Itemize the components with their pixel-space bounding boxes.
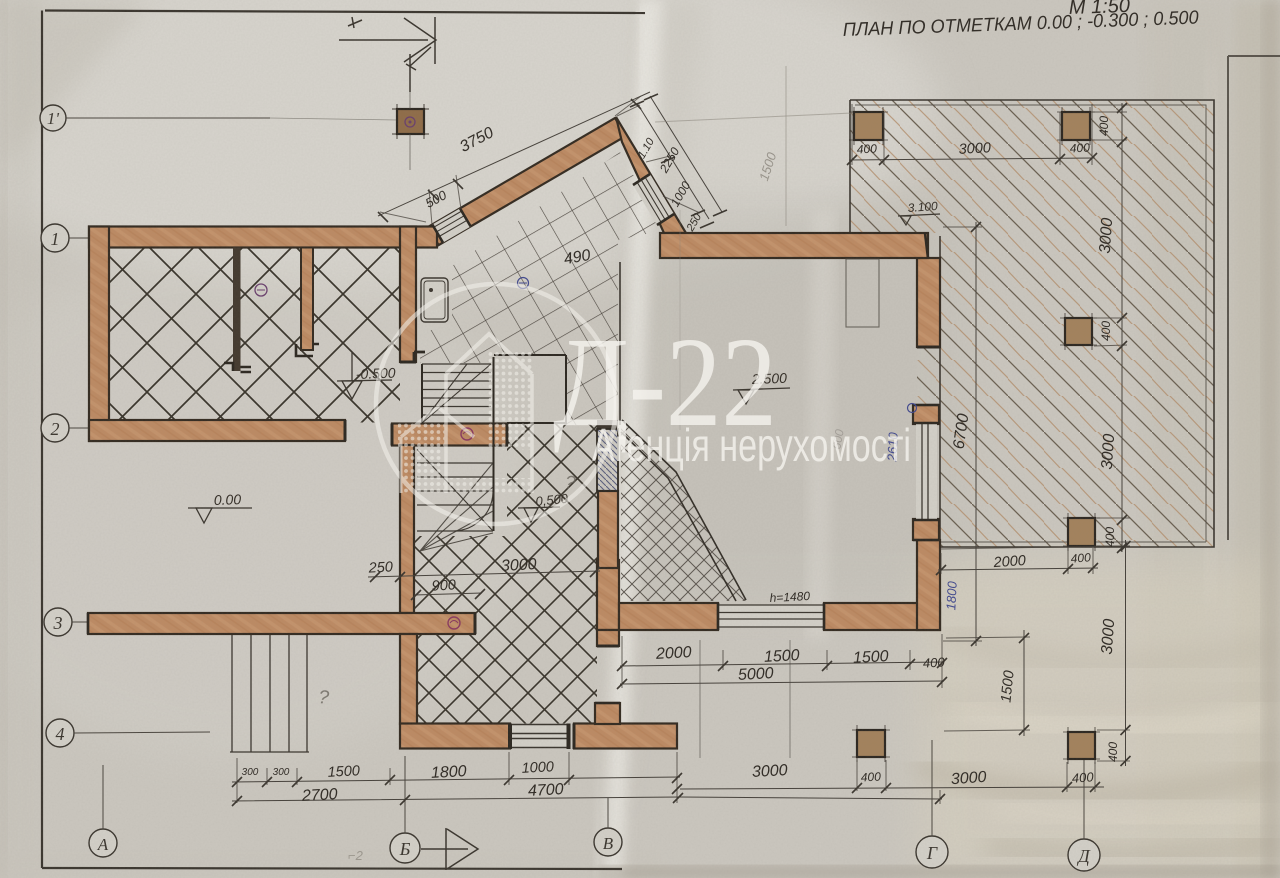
svg-text:Агенція нерухомості: Агенція нерухомості [592, 419, 911, 471]
